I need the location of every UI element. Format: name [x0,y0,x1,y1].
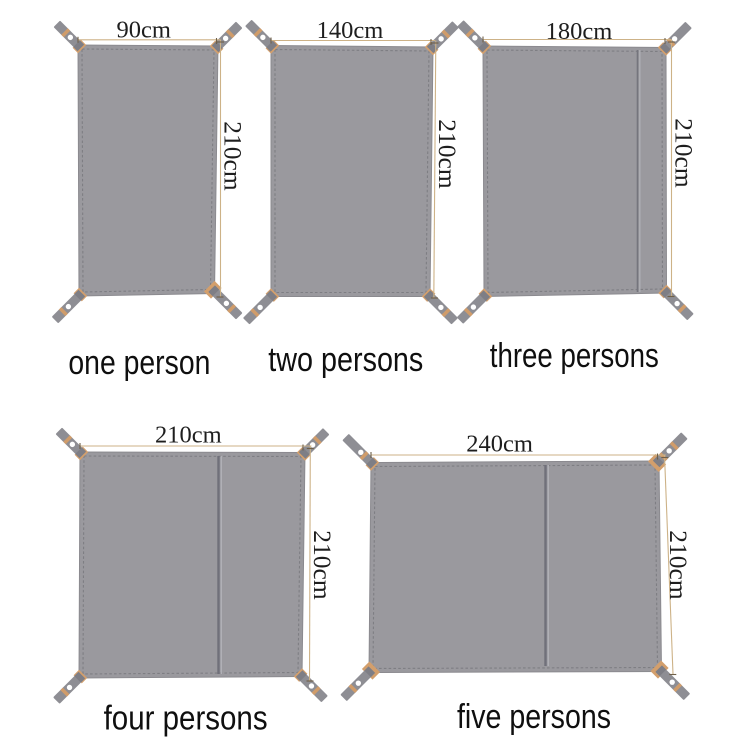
svg-text:210cm: 210cm [308,530,337,600]
svg-text:210cm: 210cm [155,421,222,448]
svg-text:one person: one person [68,344,210,382]
svg-text:210cm: 210cm [433,119,462,189]
svg-text:240cm: 240cm [466,431,533,458]
svg-text:140cm: 140cm [317,17,384,44]
svg-text:90cm: 90cm [116,16,170,43]
svg-text:210cm: 210cm [664,530,693,600]
svg-text:210cm: 210cm [218,121,247,191]
svg-text:five persons: five persons [457,698,611,736]
svg-text:two persons: two persons [268,341,423,379]
svg-text:180cm: 180cm [546,18,613,45]
svg-text:four persons: four persons [104,700,268,738]
svg-text:three persons: three persons [490,337,659,375]
svg-text:210cm: 210cm [670,118,699,188]
